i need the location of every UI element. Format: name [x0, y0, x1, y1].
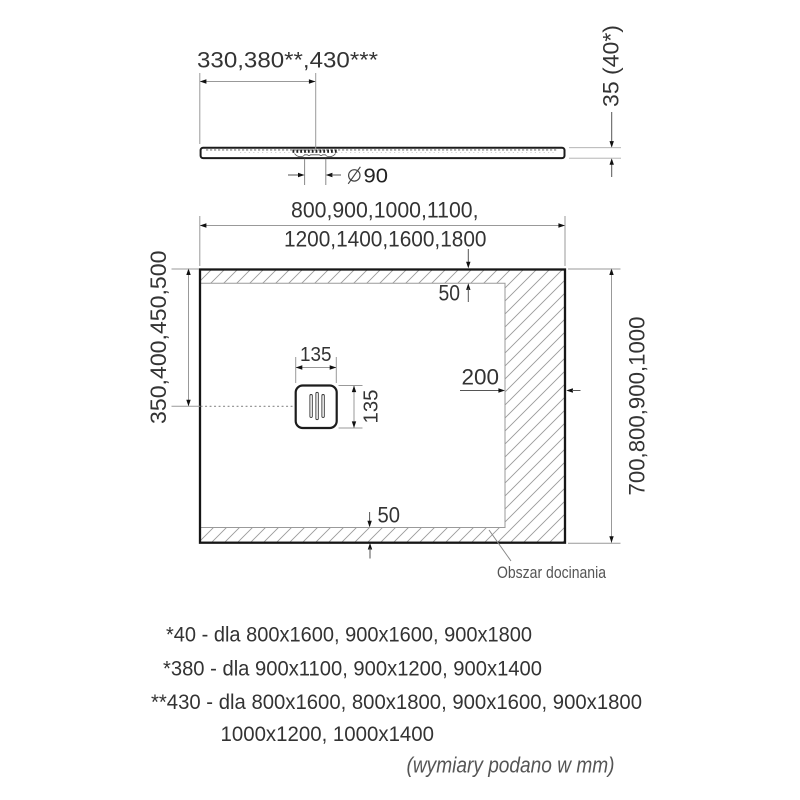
svg-text:*380 - dla 900x1100, 900x1200,: *380 - dla 900x1100, 900x1200, 900x1400 — [163, 657, 542, 681]
svg-text:35 (40*): 35 (40*) — [599, 25, 624, 107]
svg-text:350,400,450,500: 350,400,450,500 — [146, 251, 171, 425]
svg-text:*40 - dla 800x1600, 900x1600,: *40 - dla 800x1600, 900x1600, 900x1800 — [166, 623, 532, 647]
svg-text:50: 50 — [378, 503, 401, 528]
svg-text:135: 135 — [361, 390, 383, 424]
svg-text:700,800,900,1000: 700,800,900,1000 — [625, 317, 650, 496]
svg-text:(wymiary podano w mm): (wymiary podano w mm) — [407, 753, 615, 778]
svg-text:**430 - dla 800x1600, 800x1800: **430 - dla 800x1600, 800x1800, 900x1600… — [151, 690, 642, 714]
svg-text:200: 200 — [462, 365, 500, 390]
svg-text:90: 90 — [364, 165, 389, 188]
svg-text:1000x1200, 1000x1400: 1000x1200, 1000x1400 — [221, 722, 435, 746]
svg-text:Obszar docinania: Obszar docinania — [497, 564, 607, 582]
svg-text:800,900,1000,1100,: 800,900,1000,1100, — [291, 198, 479, 223]
svg-text:135: 135 — [300, 344, 332, 366]
svg-text:330,380**,430***: 330,380**,430*** — [197, 48, 378, 73]
svg-text:50: 50 — [439, 281, 461, 306]
svg-text:1200,1400,1600,1800: 1200,1400,1600,1800 — [284, 227, 487, 252]
